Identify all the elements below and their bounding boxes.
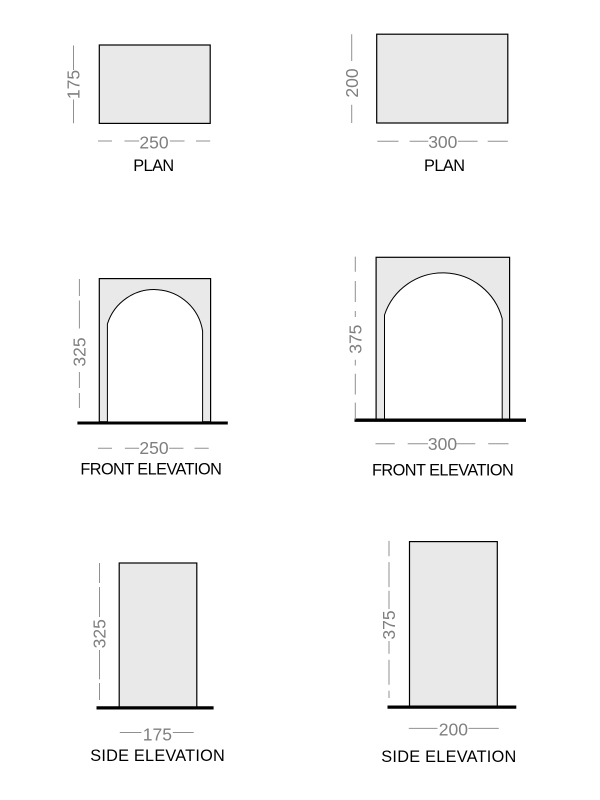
svg-text:325: 325 bbox=[90, 619, 110, 648]
svg-text:200: 200 bbox=[342, 68, 362, 97]
svg-text:175: 175 bbox=[143, 725, 172, 745]
svg-text:250: 250 bbox=[139, 438, 168, 458]
svg-text:300: 300 bbox=[428, 132, 457, 152]
svg-text:200: 200 bbox=[439, 720, 468, 740]
svg-text:375: 375 bbox=[346, 325, 366, 354]
svg-text:325: 325 bbox=[70, 337, 90, 366]
svg-text:250: 250 bbox=[139, 132, 168, 152]
svg-text:375: 375 bbox=[379, 610, 399, 639]
svg-text:175: 175 bbox=[64, 70, 84, 99]
svg-text:FRONT ELEVATION: FRONT ELEVATION bbox=[372, 462, 514, 480]
svg-text:PLAN: PLAN bbox=[424, 157, 465, 175]
svg-text:300: 300 bbox=[428, 434, 457, 454]
svg-text:SIDE ELEVATION: SIDE ELEVATION bbox=[90, 747, 225, 765]
svg-text:PLAN: PLAN bbox=[133, 157, 174, 175]
svg-text:FRONT ELEVATION: FRONT ELEVATION bbox=[80, 461, 222, 479]
svg-text:SIDE ELEVATION: SIDE ELEVATION bbox=[381, 748, 516, 766]
